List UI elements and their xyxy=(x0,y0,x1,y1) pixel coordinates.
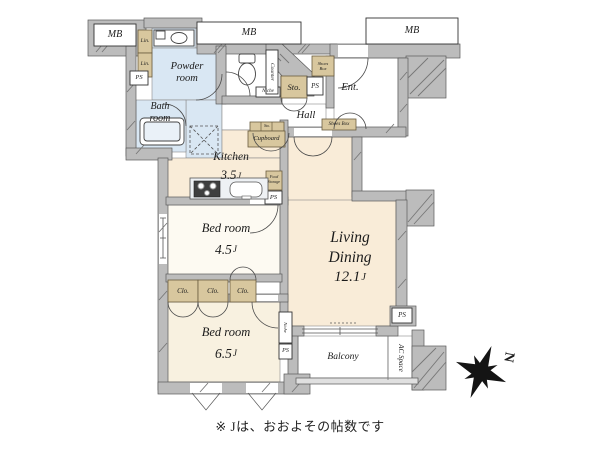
hall-label: Hall xyxy=(288,108,324,124)
meter-box-3-label: MB xyxy=(366,18,458,44)
mini-storage-label: Sto. xyxy=(261,122,273,131)
bedroom-a-label: Bed room xyxy=(178,220,274,236)
linen-1-label: Lin. xyxy=(137,31,153,52)
meter-box-1-label: MB xyxy=(94,24,136,46)
balcony-label: Balcony xyxy=(306,350,380,365)
powder-room-label: Powder room xyxy=(150,56,224,90)
living-floor-upper xyxy=(286,137,352,201)
closet-3-label: Clo. xyxy=(230,282,256,300)
footnote: ※ Jは、おおよその帖数です xyxy=(130,418,470,436)
kitchen-size-label: 3.5J xyxy=(200,167,262,183)
ps-3-label: PS xyxy=(265,191,282,204)
shoes-box-1-label: Shoes Box xyxy=(311,56,335,76)
niche-1-label: Niche xyxy=(255,86,281,98)
ac-space-label: AC Space xyxy=(394,328,408,388)
storage-label: Sto. xyxy=(281,76,307,98)
toilet-icon xyxy=(239,54,256,85)
floorplan: MB MB MB Lin. Lin. PS Powder room Bath r… xyxy=(0,0,600,450)
ps-4-label: PS xyxy=(279,344,292,359)
bedroom-b-floor xyxy=(166,302,280,382)
bath-room-label: Bath room xyxy=(134,98,186,128)
meter-box-2-label: MB xyxy=(197,22,301,44)
dining-label: Dining xyxy=(308,248,392,268)
compass-north-label: N xyxy=(495,343,521,370)
closet-2-label: Clo. xyxy=(198,282,228,300)
food-storage-label: Food Storage xyxy=(264,170,284,190)
washbasin-icon xyxy=(154,30,194,46)
living-dining-size-label: 12.1J xyxy=(306,268,394,288)
ps-1-label: PS xyxy=(130,71,148,85)
closet-1-label: Clo. xyxy=(168,282,198,300)
cupboard-label: Cupboard xyxy=(248,131,285,147)
kitchen-label: Kitchen xyxy=(195,151,267,165)
ps-2-label: PS xyxy=(307,77,323,95)
floorplan-graphic xyxy=(0,0,600,450)
powder-lower-floor xyxy=(186,100,222,158)
bedroom-a-size-label: 4.5J xyxy=(186,240,266,259)
sink-icon xyxy=(230,182,262,197)
bedroom-b-label: Bed room xyxy=(178,324,274,340)
ps-5-label: PS xyxy=(392,308,412,323)
bedroom-b-size-label: 6.5J xyxy=(186,344,266,363)
entrance-label: Ent. xyxy=(330,80,370,96)
shoes-box-2-label: Shoes Box xyxy=(322,119,356,130)
living-label: Living xyxy=(308,228,392,248)
